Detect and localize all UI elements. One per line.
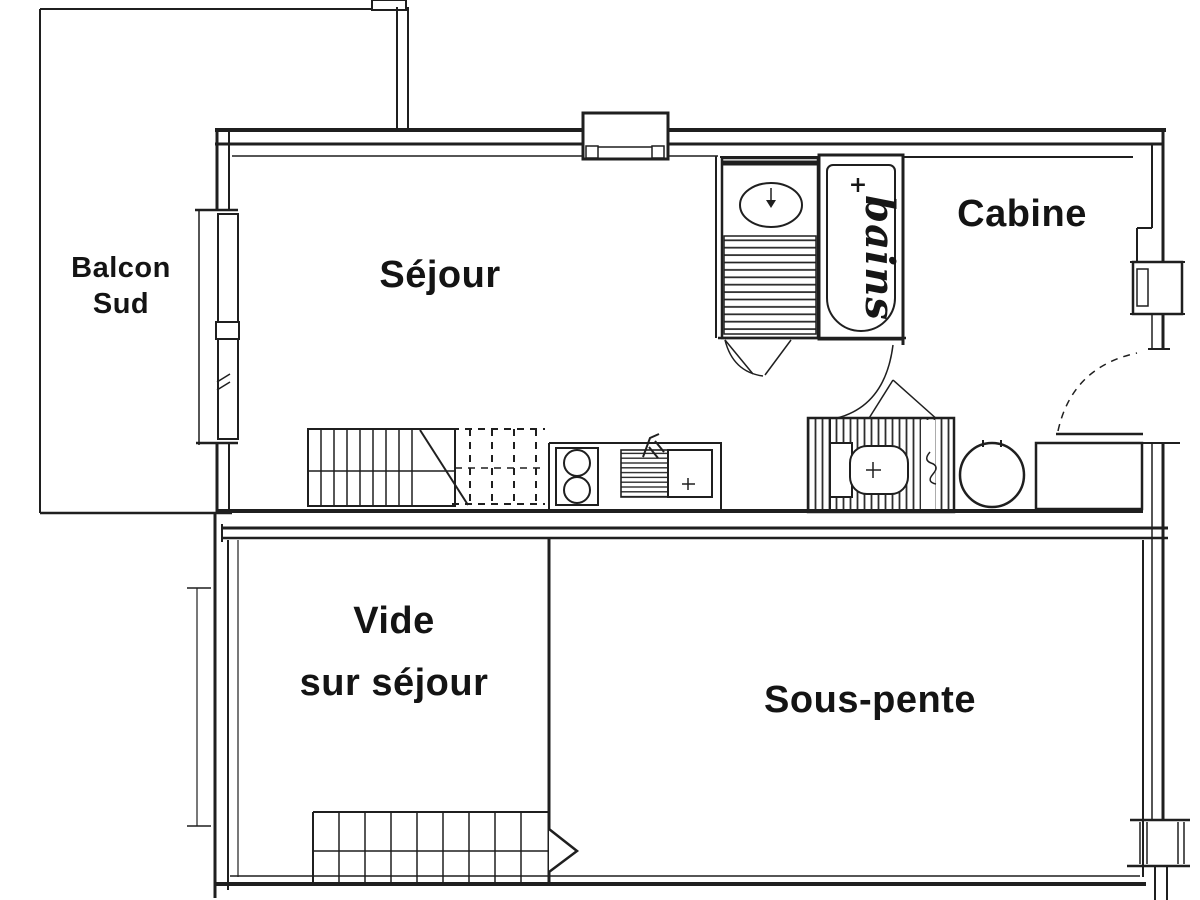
stairs-direction-arrow <box>549 829 577 872</box>
balcony-label-line2: Sud <box>93 288 149 320</box>
top-window <box>583 113 668 159</box>
void-label-line2: sur séjour <box>300 662 489 704</box>
window-mid-box <box>216 322 239 339</box>
hob-burner <box>564 477 590 503</box>
water-heater <box>960 440 1024 507</box>
wc-white-gap <box>921 420 935 510</box>
under-slope-label: Sous-pente <box>764 679 976 721</box>
bath-script-label: bains <box>856 195 903 321</box>
window-foot <box>652 146 664 158</box>
balcony-label-line1: Balcon <box>71 252 171 284</box>
washbasin-striped-counter <box>724 236 816 334</box>
stairs-upper-dashed <box>452 429 545 504</box>
door-swing-arc-hall <box>833 345 893 419</box>
sink-basin <box>668 450 712 497</box>
living-room-label: Séjour <box>379 254 500 296</box>
bath-plus-mark: + <box>849 172 867 198</box>
hob-burner <box>564 450 590 476</box>
floor-plan-page: Balcon Sud <box>0 0 1200 900</box>
left-wall-upper <box>195 128 239 513</box>
wc-unit <box>808 418 954 512</box>
door-leaf <box>893 380 939 421</box>
void-label-line1: Vide <box>353 600 435 642</box>
door-leaf <box>765 340 791 375</box>
kitchen-counter <box>549 434 722 510</box>
window-foot <box>586 146 598 158</box>
window-leaf <box>218 339 238 439</box>
bathroom-block: + bains <box>716 155 906 345</box>
lower-level: Vide sur séjour Sous-pente <box>187 513 1168 898</box>
stairs-lower <box>313 812 577 884</box>
floor-plan-drawing: Balcon Sud <box>0 0 1200 900</box>
cabin-window <box>1130 262 1185 314</box>
right-exterior-wall <box>1127 128 1190 900</box>
toilet-tank <box>830 443 852 497</box>
drainer-striped <box>621 450 668 497</box>
door-swing-arc-bathroom <box>725 340 763 376</box>
door-swing-arc-cabin <box>1058 353 1137 431</box>
cupboard-box <box>1036 443 1142 509</box>
door-leaf <box>725 340 753 374</box>
top-exterior-wall <box>215 130 1166 157</box>
water-heater-circle <box>960 443 1024 507</box>
balcony-top-notch <box>372 0 406 10</box>
dimension-line <box>187 588 211 826</box>
under-slope-window <box>1127 820 1190 866</box>
cabin-label: Cabine <box>957 193 1087 235</box>
stairs-box <box>308 429 455 506</box>
stairs-upper-solid <box>308 429 468 506</box>
window-leaf <box>218 214 238 322</box>
cupboard <box>1036 434 1143 509</box>
